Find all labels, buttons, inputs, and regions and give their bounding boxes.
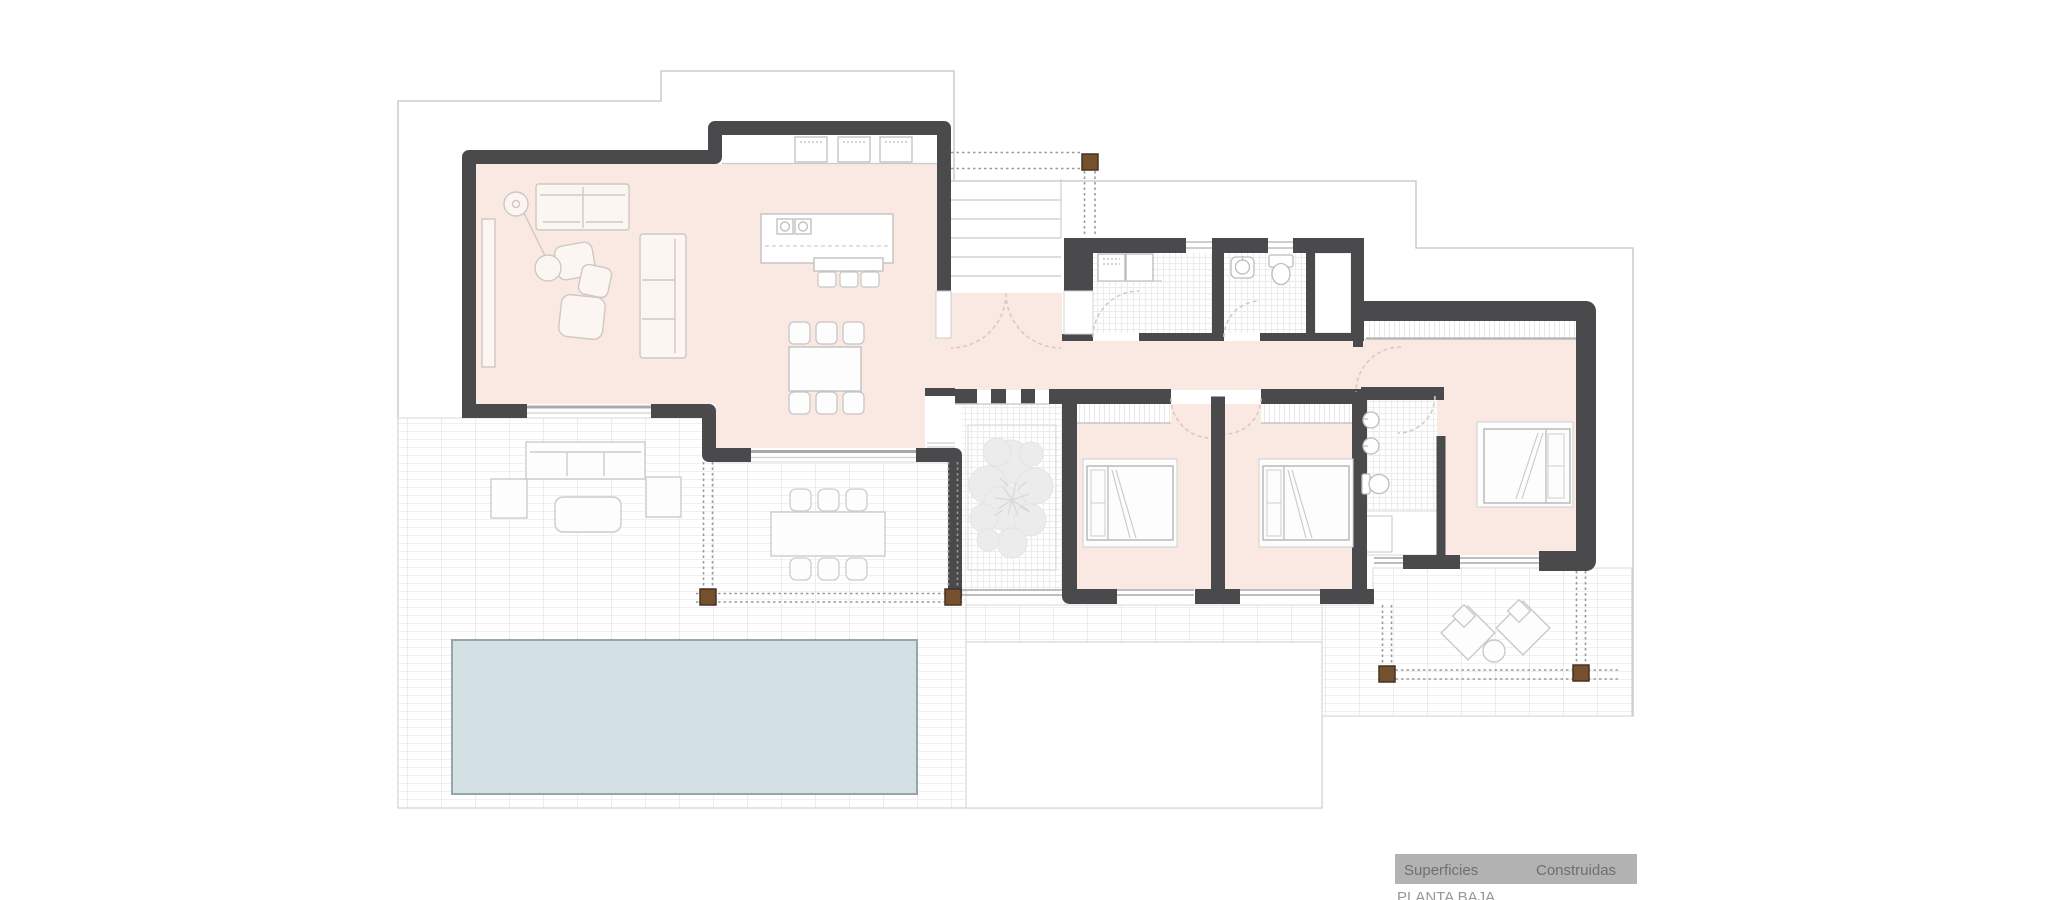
- svg-text:PLANTA BAJA: PLANTA BAJA: [1397, 889, 1495, 900]
- svg-text:Superficies: Superficies: [1404, 862, 1478, 879]
- svg-text:Construidas: Construidas: [1536, 862, 1616, 879]
